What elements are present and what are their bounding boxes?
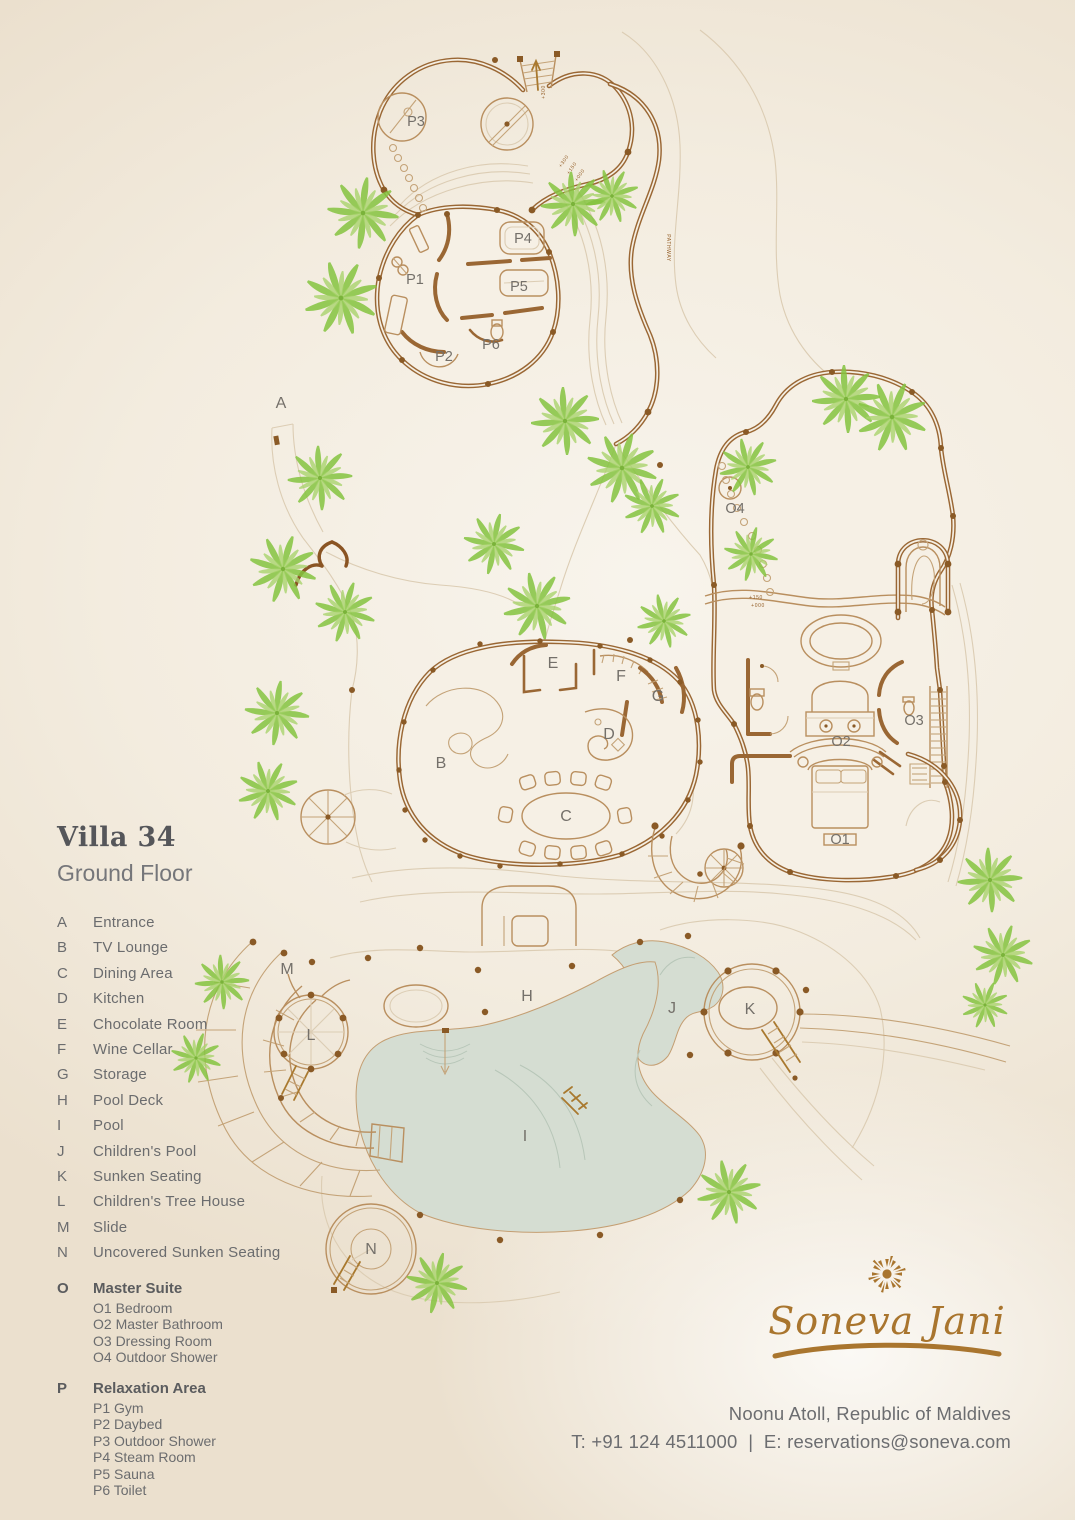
footer-email: E: reservations@soneva.com: [764, 1431, 1011, 1452]
plan-label-uncovered-seating: N: [365, 1241, 377, 1258]
legend-panel: Villa 34 Ground Floor AEntrance BTV Loun…: [57, 822, 357, 1499]
legend-sub-p6: P6 Toilet: [93, 1482, 357, 1499]
legend-item-dining-area: CDining Area: [57, 961, 357, 986]
plan-label-sunken-seating: K: [745, 1001, 756, 1018]
relaxation-pavilion: [373, 51, 659, 444]
plan-label-p3: P3: [407, 114, 425, 130]
legend-item-tree-house: LChildren's Tree House: [57, 1189, 357, 1214]
footer-location: Noonu Atoll, Republic of Maldives: [571, 1400, 1011, 1428]
plan-label-tv-lounge: B: [436, 755, 447, 772]
plan-label-wine-cellar: F: [616, 668, 626, 685]
level-marker: +300: [541, 85, 547, 99]
legend-sub-p1: P1 Gym: [93, 1400, 357, 1417]
legend-item-pool: IPool: [57, 1113, 357, 1138]
palm-tree-icon: [304, 571, 385, 652]
plan-label-p2: P2: [435, 349, 453, 365]
legend-item-entrance: AEntrance: [57, 910, 357, 935]
footer-phone: T: +91 124 4511000: [571, 1431, 737, 1452]
legend-sub-o1: O1 Bedroom: [93, 1300, 357, 1317]
brand-name: Soneva Jani: [768, 1299, 1006, 1343]
plan-label-kitchen: D: [603, 726, 615, 743]
palm-tree-icon: [958, 848, 1023, 913]
legend-group-relaxation-area: PRelaxation Area P1 Gym P2 Daybed P3 Out…: [57, 1378, 357, 1499]
legend-sub-p3: P3 Outdoor Shower: [93, 1433, 357, 1450]
level-marker: +150: [749, 595, 763, 601]
legend-sub-p2: P2 Daybed: [93, 1416, 357, 1433]
sun-icon: [868, 1256, 905, 1293]
palm-tree-icon: [295, 252, 387, 344]
footer-contact-line: T: +91 124 4511000 | E: reservations@son…: [571, 1428, 1011, 1456]
plan-label-p5: P5: [510, 279, 528, 295]
palm-tree-icon: [457, 507, 532, 582]
plan-label-o2: O2: [831, 734, 850, 750]
plan-label-p6: P6: [482, 337, 500, 353]
legend-item-kitchen: DKitchen: [57, 986, 357, 1011]
palm-tree-icon: [531, 387, 599, 455]
palm-tree-icon: [964, 916, 1042, 994]
plan-label-pool: I: [523, 1128, 527, 1145]
legend-item-childrens-pool: JChildren's Pool: [57, 1139, 357, 1164]
page-subtitle: Ground Floor: [57, 860, 357, 887]
plan-label-chocolate-room: E: [548, 655, 559, 672]
floor-plan-page: A B C D E F G H I J K L M N O1 O2 O3 O4 …: [0, 0, 1075, 1520]
level-marker: +000: [574, 168, 587, 183]
footer-separator: |: [748, 1431, 753, 1452]
plan-label-o4: O4: [725, 501, 744, 517]
legend-item-uncovered-sunken-seating: NUncovered Sunken Seating: [57, 1240, 357, 1265]
legend-item-sunken-seating: KSunken Seating: [57, 1164, 357, 1189]
palm-tree-icon: [240, 676, 315, 751]
level-marker: +000: [751, 603, 765, 609]
plan-label-dining: C: [560, 808, 572, 825]
plan-label-entrance: A: [276, 395, 287, 412]
pool-shapes: [356, 941, 723, 1233]
footer-contact: Noonu Atoll, Republic of Maldives T: +91…: [571, 1400, 1011, 1456]
legend-group-master-suite: OMaster Suite O1 Bedroom O2 Master Bathr…: [57, 1278, 357, 1366]
soneva-jani-logo: Soneva Jani: [757, 1256, 1017, 1376]
brand-swoosh: [775, 1345, 999, 1356]
legend-sub-o4: O4 Outdoor Shower: [93, 1349, 357, 1366]
page-title: Villa 34: [57, 822, 357, 853]
palm-tree-icon: [288, 446, 353, 511]
palm-tree-icon: [626, 583, 702, 659]
legend-item-chocolate-room: EChocolate Room: [57, 1012, 357, 1037]
palm-tree-icon: [239, 525, 326, 612]
palm-tree-icon: [498, 567, 577, 646]
plan-label-o3: O3: [904, 713, 923, 729]
legend-item-storage: GStorage: [57, 1062, 357, 1087]
palm-tree-icon: [954, 974, 1015, 1035]
legend-sub-p4: P4 Steam Room: [93, 1449, 357, 1466]
legend-item-tv-lounge: BTV Lounge: [57, 935, 357, 960]
legend-item-pool-deck: HPool Deck: [57, 1088, 357, 1113]
palm-tree-icon: [231, 754, 306, 829]
plan-label-childrens-pool: J: [668, 1000, 676, 1017]
legend-sub-o2: O2 Master Bathroom: [93, 1316, 357, 1333]
pathway-label: PATHWAY: [665, 234, 671, 262]
legend-sub-p5: P5 Sauna: [93, 1466, 357, 1483]
legend-sub-o3: O3 Dressing Room: [93, 1333, 357, 1350]
plan-label-storage: G: [652, 688, 664, 705]
plan-label-p1: P1: [406, 272, 424, 288]
plan-label-p4: P4: [514, 231, 532, 247]
plan-label-o1: O1: [830, 832, 849, 848]
legend-item-wine-cellar: FWine Cellar: [57, 1037, 357, 1062]
plan-label-pool-deck: H: [521, 988, 533, 1005]
legend-item-slide: MSlide: [57, 1215, 357, 1240]
